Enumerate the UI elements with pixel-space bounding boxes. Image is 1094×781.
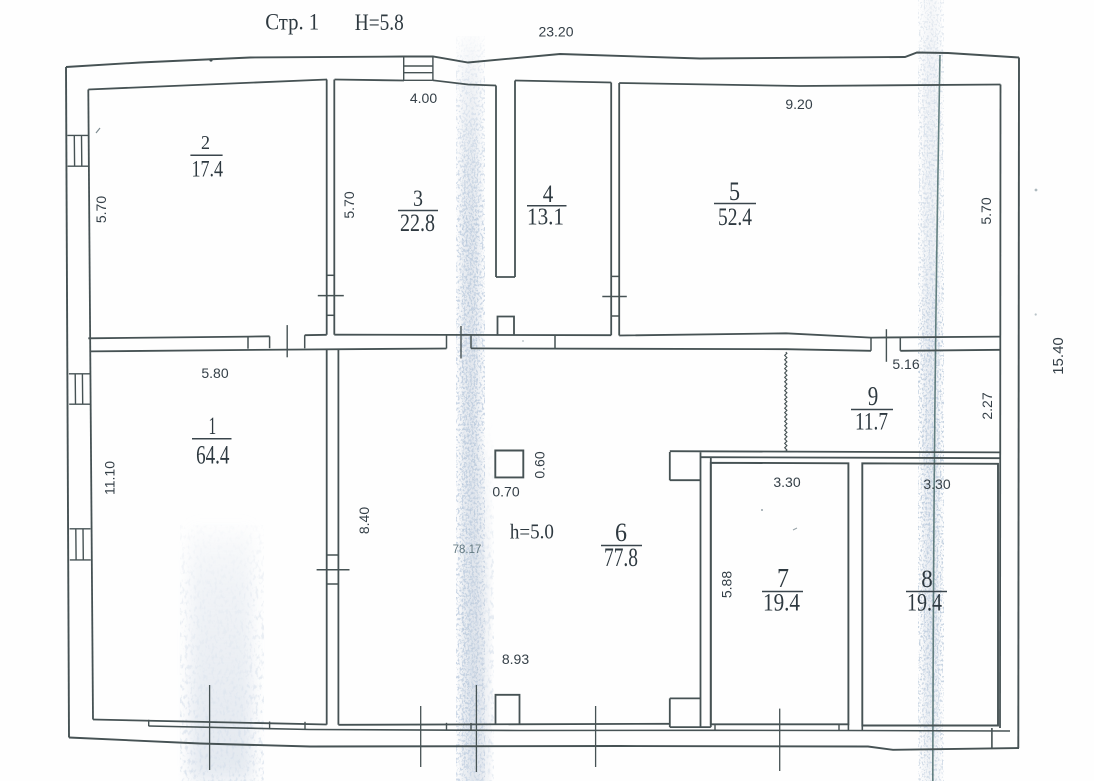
svg-text:2: 2 [201, 132, 210, 154]
svg-text:0.70: 0.70 [492, 484, 519, 500]
svg-text:1: 1 [208, 413, 216, 440]
svg-text:22.8: 22.8 [400, 210, 435, 237]
svg-text:78.17: 78.17 [453, 544, 482, 556]
svg-text:4.00: 4.00 [410, 90, 437, 106]
svg-text:52.4: 52.4 [718, 204, 752, 231]
svg-text:77.8: 77.8 [604, 543, 638, 572]
svg-text:h=5.0: h=5.0 [510, 520, 554, 544]
svg-text:19.4: 19.4 [763, 590, 800, 617]
svg-text:5.88: 5.88 [719, 571, 735, 598]
svg-text:5.80: 5.80 [201, 365, 228, 381]
svg-text:7: 7 [777, 563, 789, 593]
svg-text:13.1: 13.1 [527, 205, 564, 231]
svg-text:3.30: 3.30 [923, 476, 950, 492]
svg-text:19.4: 19.4 [907, 590, 942, 617]
svg-text:5.70: 5.70 [341, 191, 357, 218]
svg-text:5: 5 [729, 177, 740, 206]
svg-text:11.10: 11.10 [102, 461, 118, 495]
svg-text:8.40: 8.40 [356, 507, 372, 534]
svg-text:2.27: 2.27 [979, 392, 995, 419]
svg-text:64.4: 64.4 [196, 441, 229, 470]
svg-text:5.16: 5.16 [892, 356, 919, 372]
svg-text:15.40: 15.40 [1050, 337, 1067, 375]
svg-text:9.20: 9.20 [785, 96, 812, 112]
svg-text:8.93: 8.93 [502, 651, 529, 667]
svg-text:11.7: 11.7 [855, 409, 888, 436]
svg-text:Н=5.8: Н=5.8 [355, 10, 404, 35]
svg-text:Стр. 1: Стр. 1 [265, 10, 319, 35]
svg-text:3: 3 [413, 186, 423, 211]
svg-text:5.70: 5.70 [978, 197, 994, 224]
svg-text:3.30: 3.30 [773, 474, 800, 490]
svg-text:5.70: 5.70 [93, 196, 109, 223]
svg-text:17.4: 17.4 [192, 156, 224, 181]
svg-text:9: 9 [868, 381, 879, 411]
svg-text:23.20: 23.20 [538, 24, 573, 40]
svg-text:0.60: 0.60 [532, 451, 548, 478]
